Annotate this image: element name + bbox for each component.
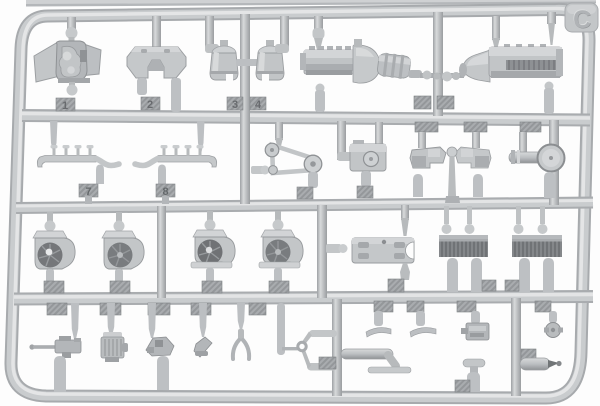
svg-text:1: 1: [62, 100, 68, 112]
svg-text:2: 2: [147, 99, 153, 111]
svg-text:4: 4: [255, 99, 262, 111]
svg-text:C: C: [573, 6, 591, 34]
svg-text:3: 3: [232, 99, 238, 111]
